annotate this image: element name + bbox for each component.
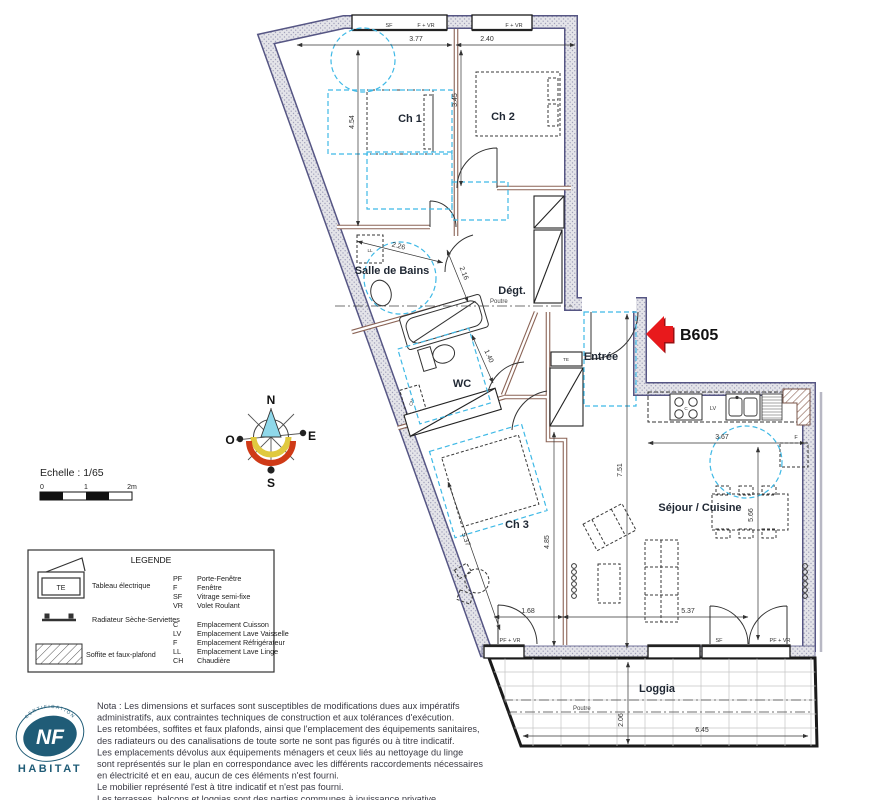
dim-140: 1.40 xyxy=(482,349,494,364)
room-label-degt: Dégt. xyxy=(498,285,526,297)
dim-566: 5.66 xyxy=(748,508,755,522)
legend-code-label: Emplacement Cuisson xyxy=(197,620,269,629)
legend-code: F xyxy=(173,638,178,647)
door-sdb xyxy=(445,235,473,272)
nota-line: Les terrasses, balcons et loggias sont d… xyxy=(97,794,439,800)
washbasin xyxy=(368,278,395,309)
label-sf-top: SF xyxy=(385,23,393,29)
label-pfvr-ch3: PF + VR xyxy=(500,638,521,644)
room-label-sdb: Salle de Bains xyxy=(355,265,430,277)
compass-e: E xyxy=(308,429,316,443)
kitchen: C LV F xyxy=(648,389,810,467)
floor-plan-svg: Poutre Loggia xyxy=(0,0,874,800)
dim-206: 2.06 xyxy=(618,713,625,727)
loggia-outline xyxy=(489,658,817,746)
legend-code: SF xyxy=(173,592,183,601)
legend-code: CH xyxy=(173,656,183,665)
dim-751: 7.51 xyxy=(617,463,624,477)
nota-line: des radiateurs ou des canalisations de t… xyxy=(97,736,455,746)
compass-rose: N E O S xyxy=(225,393,316,490)
scale-label: Echelle : 1/65 xyxy=(40,467,104,479)
radiator-left xyxy=(572,564,577,599)
ll-label: LL xyxy=(367,248,373,253)
nf-habitat-logo: CERTIFICATION NF HABITAT xyxy=(11,701,89,775)
compass-n: N xyxy=(267,393,276,407)
dim-454: 4.54 xyxy=(349,115,356,129)
entry-opening xyxy=(582,296,636,311)
legend-code: LV xyxy=(173,629,181,638)
room-label-sejour: Séjour / Cuisine xyxy=(658,502,741,514)
nota-line: Le mobilier représenté l'est à titre ind… xyxy=(97,782,344,792)
legend-radiator-label: Radiateur Sèche-Serviettes xyxy=(92,615,180,624)
legend-code-label: Emplacement Réfrigérateur xyxy=(197,638,285,647)
legend-te-text: TE xyxy=(57,585,66,592)
floor-plan-page: Poutre Loggia xyxy=(0,0,874,800)
beam-label: Poutre xyxy=(490,299,508,305)
room-label-entree: Entrée xyxy=(584,351,618,363)
legend-code-label: Volet Roulant xyxy=(197,601,240,610)
room-label-ch3: Ch 3 xyxy=(505,519,529,531)
dim-537: 5.37 xyxy=(681,608,695,615)
label-sf-sejour: SF xyxy=(715,638,723,644)
scale-tick-0: 0 xyxy=(40,484,44,491)
legend-code-label: Chaudière xyxy=(197,656,230,665)
nota-line: sont représentés sur le plan en correspo… xyxy=(97,759,483,769)
room-label-loggia: Loggia xyxy=(639,683,676,695)
drainer xyxy=(762,394,782,420)
scale-bar: Echelle : 1/65 0 1 2m xyxy=(40,467,137,500)
dim-216: 2.16 xyxy=(458,266,470,281)
nota-line: Les retombées, soffites et faux plafonds… xyxy=(97,724,480,734)
bed-ch2 xyxy=(476,72,560,136)
side-table xyxy=(598,564,620,603)
logo-habitat: HABITAT xyxy=(18,763,82,775)
legend-code: F xyxy=(173,583,178,592)
nota-line: Nota : Les dimensions et surfaces sont s… xyxy=(97,701,460,711)
dim-345: 3.45 xyxy=(452,93,459,107)
legend-title: LEGENDE xyxy=(131,555,172,565)
label-fvr-ch2: F + VR xyxy=(505,23,522,29)
ch3-wardrobe xyxy=(404,388,501,436)
dim-367: 3.67 xyxy=(715,434,729,441)
legend-code: C xyxy=(173,620,178,629)
legend-soffite-label: Soffite et faux-plafond xyxy=(86,650,156,659)
fridge-label: F xyxy=(794,435,798,441)
compass-s: S xyxy=(267,476,275,490)
loggia-beam-label: Poutre xyxy=(573,706,591,712)
label-pfvr-sejour: PF + VR xyxy=(770,638,791,644)
lv-label: LV xyxy=(710,406,717,412)
legend-code: PF xyxy=(173,574,183,583)
nota-line: Les emplacements dévolus aux équipements… xyxy=(97,747,463,757)
sofa xyxy=(583,504,636,551)
nota-block: Nota : Les dimensions et surfaces sont s… xyxy=(97,701,483,800)
dim-537-diag: 5.37 xyxy=(460,532,471,547)
legend-box: LEGENDE TE Tableau électrique Radiateur … xyxy=(28,550,289,672)
unit-marker: B605 xyxy=(646,316,718,354)
loggia: Poutre Loggia xyxy=(489,658,817,746)
dim-240: 2.40 xyxy=(480,36,494,43)
legend-code-label: Fenêtre xyxy=(197,583,222,592)
dim-168: 1.68 xyxy=(521,608,535,615)
legend-code-label: Emplacement Lave Vaisselle xyxy=(197,629,289,638)
te-label: TE xyxy=(563,357,569,362)
compass-o: O xyxy=(225,433,234,447)
radiators xyxy=(572,564,808,599)
soffite-corner xyxy=(783,389,810,425)
room-label-wc: WC xyxy=(453,378,471,390)
dim-485: 4.85 xyxy=(544,535,551,549)
scale-tick-1: 1 xyxy=(84,484,88,491)
compass-north-needle xyxy=(261,409,281,437)
room-label-ch1: Ch 1 xyxy=(398,113,422,125)
bathtub xyxy=(399,294,489,350)
nota-line: en électricité et en eau, aucun de ces é… xyxy=(97,771,339,781)
legend-soffite-icon xyxy=(36,644,82,664)
legend-te-label: Tableau électrique xyxy=(92,581,150,590)
logo-nf: NF xyxy=(36,726,65,749)
label-fvr-ch1: F + VR xyxy=(417,23,434,29)
dim-377: 3.77 xyxy=(409,36,423,43)
nota-line: administratifs, aux contraintes techniqu… xyxy=(97,713,454,723)
legend-code: LL xyxy=(173,647,181,656)
scale-tick-2m: 2m xyxy=(127,484,137,491)
legend-code-label: Emplacement Lave Linge xyxy=(197,647,278,656)
legend-code: VR xyxy=(173,601,183,610)
unit-label: B605 xyxy=(680,327,718,344)
dim-645: 6.45 xyxy=(695,727,709,734)
legend-code-label: Vitrage semi-fixe xyxy=(197,592,250,601)
room-label-ch2: Ch 2 xyxy=(491,111,515,123)
bed-ch3 xyxy=(442,435,539,527)
unit-arrow-icon xyxy=(646,316,673,352)
legend-code-label: Porte-Fenêtre xyxy=(197,574,241,583)
